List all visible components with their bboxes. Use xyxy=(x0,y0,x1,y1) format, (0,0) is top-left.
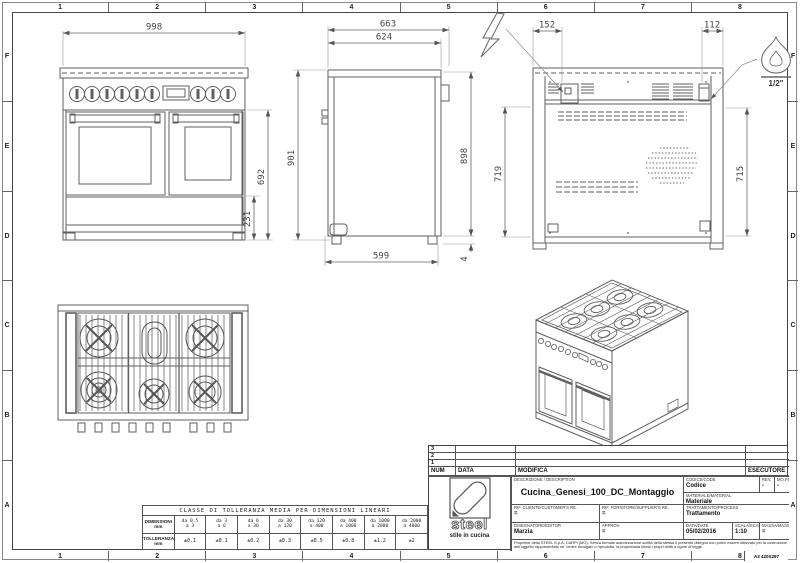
tolerance-range: da 30a 120 xyxy=(269,516,301,533)
dim-depth-total: 663 xyxy=(380,20,396,30)
dim-rear-left: 719 xyxy=(494,166,504,182)
customer-ref-cell: RIF. CLIENTE/CUSTOMER'S RE. = xyxy=(511,504,599,522)
rev-header-modifica: MODIFICA xyxy=(516,467,746,476)
legal-text: Proprieta' della STEEL S.p.A. CARPI (MO)… xyxy=(512,540,789,551)
drawing-title: Cucina_Genesi_100_DC_Montaggio xyxy=(512,487,683,497)
rev-exec xyxy=(746,453,789,460)
date-value: 05/02/2016 xyxy=(684,529,732,535)
tolerance-value: ±0.3 xyxy=(269,533,301,549)
dim-front-width: 998 xyxy=(146,23,162,33)
supplier-ref-cell: RIF. FORNITORE/SUPPLIER'S RE. = xyxy=(599,504,683,522)
right-door-window xyxy=(185,127,231,180)
lightning-bolt-icon xyxy=(481,13,504,57)
tolerance-title: CLASSE DI TOLLERANZA MEDIA PER DIMENSION… xyxy=(143,506,428,516)
rev-desc xyxy=(516,460,746,467)
rev-num: 1 xyxy=(429,460,456,467)
extension-lines xyxy=(63,26,751,266)
dim-front-body: 692 xyxy=(257,169,267,185)
dim-gas-offset: 112 xyxy=(704,21,720,31)
tolerance-range: da 2000a 4000 xyxy=(396,516,428,533)
scale-value: 1:10 xyxy=(733,529,759,535)
mod-value: - xyxy=(775,483,789,489)
customer-ref-value: = xyxy=(512,511,599,517)
mass-cell: MASSA/MASS kg = xyxy=(759,522,789,539)
perforation-field xyxy=(646,148,698,183)
rev-date xyxy=(456,446,516,453)
dim-depth-body: 624 xyxy=(376,33,392,43)
storage-drawer xyxy=(66,197,243,225)
logo-word: steel xyxy=(451,519,488,532)
left-oven-door xyxy=(66,112,165,195)
rev-num: 3 xyxy=(429,446,456,453)
logo-tagline: stile in cucina xyxy=(450,533,490,539)
tolerance-dim-label: DIMENSIONImm xyxy=(143,516,175,533)
side-view xyxy=(322,70,449,244)
supplier-ref-value: = xyxy=(600,511,683,517)
gas-size-label: 1/2" xyxy=(769,79,784,88)
mass-value: = xyxy=(760,529,789,535)
approval-cell: APPROV. = xyxy=(599,522,683,539)
material-cell: MATERIALE/MATERIAL Materiale xyxy=(683,492,789,504)
dim-elec-offset: 152 xyxy=(539,21,555,31)
isometric-view xyxy=(536,280,688,449)
scale-label: SCALA/SCALE xyxy=(733,523,759,529)
rev-header-esecutore: ESECUTORE xyxy=(746,467,789,476)
dim-rear-right: 715 xyxy=(736,166,746,182)
process-value: Trattamento xyxy=(684,511,789,517)
tolerance-value: ±0.1 xyxy=(174,533,206,549)
rev-date xyxy=(456,460,516,467)
dim-front-base: 231 xyxy=(243,211,253,227)
mod-label: MO.FE. xyxy=(775,477,789,483)
company-logo: steel stile in cucina xyxy=(429,476,511,551)
tolerance-value: ±0.5 xyxy=(301,533,333,549)
tolerance-range: da 6a 30 xyxy=(237,516,269,533)
code-value: Codice xyxy=(684,483,759,489)
rear-box xyxy=(441,85,449,101)
left-door-window xyxy=(79,127,151,184)
dimension-lines xyxy=(63,30,747,262)
legal-cell: Proprieta' della STEEL S.p.A. CARPI (MO)… xyxy=(511,539,789,551)
gas-inlet xyxy=(699,84,709,101)
sheet-size-label: A3 420X297 xyxy=(744,551,788,561)
iso-knobs xyxy=(538,338,607,369)
top-view xyxy=(58,305,248,432)
date-cell: DATA/DATE 05/02/2016 xyxy=(683,522,732,539)
tolerance-range: da 0.5a 3 xyxy=(174,516,206,533)
tolerance-value: ±0.8 xyxy=(332,533,364,549)
rev-value: - xyxy=(760,483,774,489)
drawing-sheet: 1 2 3 4 5 6 7 8 1 2 3 4 5 6 7 8 F E D C … xyxy=(0,0,800,563)
rev-desc xyxy=(516,453,746,460)
tolerance-range: da 120a 400 xyxy=(301,516,333,533)
knob-row-top xyxy=(78,423,231,432)
tolerance-value: ±0.1 xyxy=(206,533,238,549)
iso-grate-lines xyxy=(545,284,679,347)
tolerance-range: da 3a 6 xyxy=(206,516,238,533)
dim-back-height: 898 xyxy=(460,148,470,164)
right-oven-door xyxy=(169,112,243,195)
dim-total-height: 901 xyxy=(287,150,297,166)
tolerance-value: ±2 xyxy=(396,533,428,549)
title-block: 3 2 1 NUM DATA MODIFICA ESECUTORE steel … xyxy=(428,445,788,550)
description-cell: DESCRIZIONE / DESCRIPTION Cucina_Genesi_… xyxy=(511,476,683,504)
rev-exec xyxy=(746,446,789,453)
control-knobs xyxy=(70,86,236,102)
rear-view xyxy=(533,68,723,249)
rev-num: 2 xyxy=(429,453,456,460)
approval-value: = xyxy=(600,529,683,535)
dim-base-depth: 599 xyxy=(373,252,389,262)
iso-badge xyxy=(668,399,678,412)
mass-label: MASSA/MASS kg xyxy=(760,523,789,529)
tolerance-tol-label: TOLLERANZAmm xyxy=(143,533,175,549)
code-cell: CODICE/CODE Codice xyxy=(683,476,759,492)
description-label: DESCRIZIONE / DESCRIPTION xyxy=(512,477,683,483)
tolerance-range: da 400a 1000 xyxy=(332,516,364,533)
steel-logo-icon xyxy=(446,477,494,519)
rev-date xyxy=(456,453,516,460)
tolerance-value: ±0.2 xyxy=(237,533,269,549)
connection-symbols: 1/2" xyxy=(481,13,791,99)
flame-icon xyxy=(761,37,791,77)
tolerance-range: da 1000a 2000 xyxy=(364,516,396,533)
scale-cell: SCALA/SCALE 1:10 xyxy=(732,522,759,539)
tolerance-table: CLASSE DI TOLLERANZA MEDIA PER DIMENSION… xyxy=(142,505,428,550)
editor-cell: DISEGNATORE/EDITOR Marzia xyxy=(511,522,599,539)
tolerance-value: ±1.2 xyxy=(364,533,396,549)
right-door-handle xyxy=(173,115,239,122)
mod-cell: MO.FE. - xyxy=(774,476,789,492)
front-view xyxy=(60,68,248,240)
left-door-handle xyxy=(70,115,160,122)
iso-right-door xyxy=(576,382,610,440)
rev-desc xyxy=(516,446,746,453)
rev-exec xyxy=(746,460,789,467)
rev-header-data: DATA xyxy=(456,467,516,476)
editor-value: Marzia xyxy=(512,529,599,535)
rev-header-num: NUM xyxy=(429,467,456,476)
rev-cell: REV. - xyxy=(759,476,774,492)
process-cell: TRATTAMENTO/PROCESS Trattamento xyxy=(683,504,789,522)
dim-foot: 4 xyxy=(460,256,470,261)
